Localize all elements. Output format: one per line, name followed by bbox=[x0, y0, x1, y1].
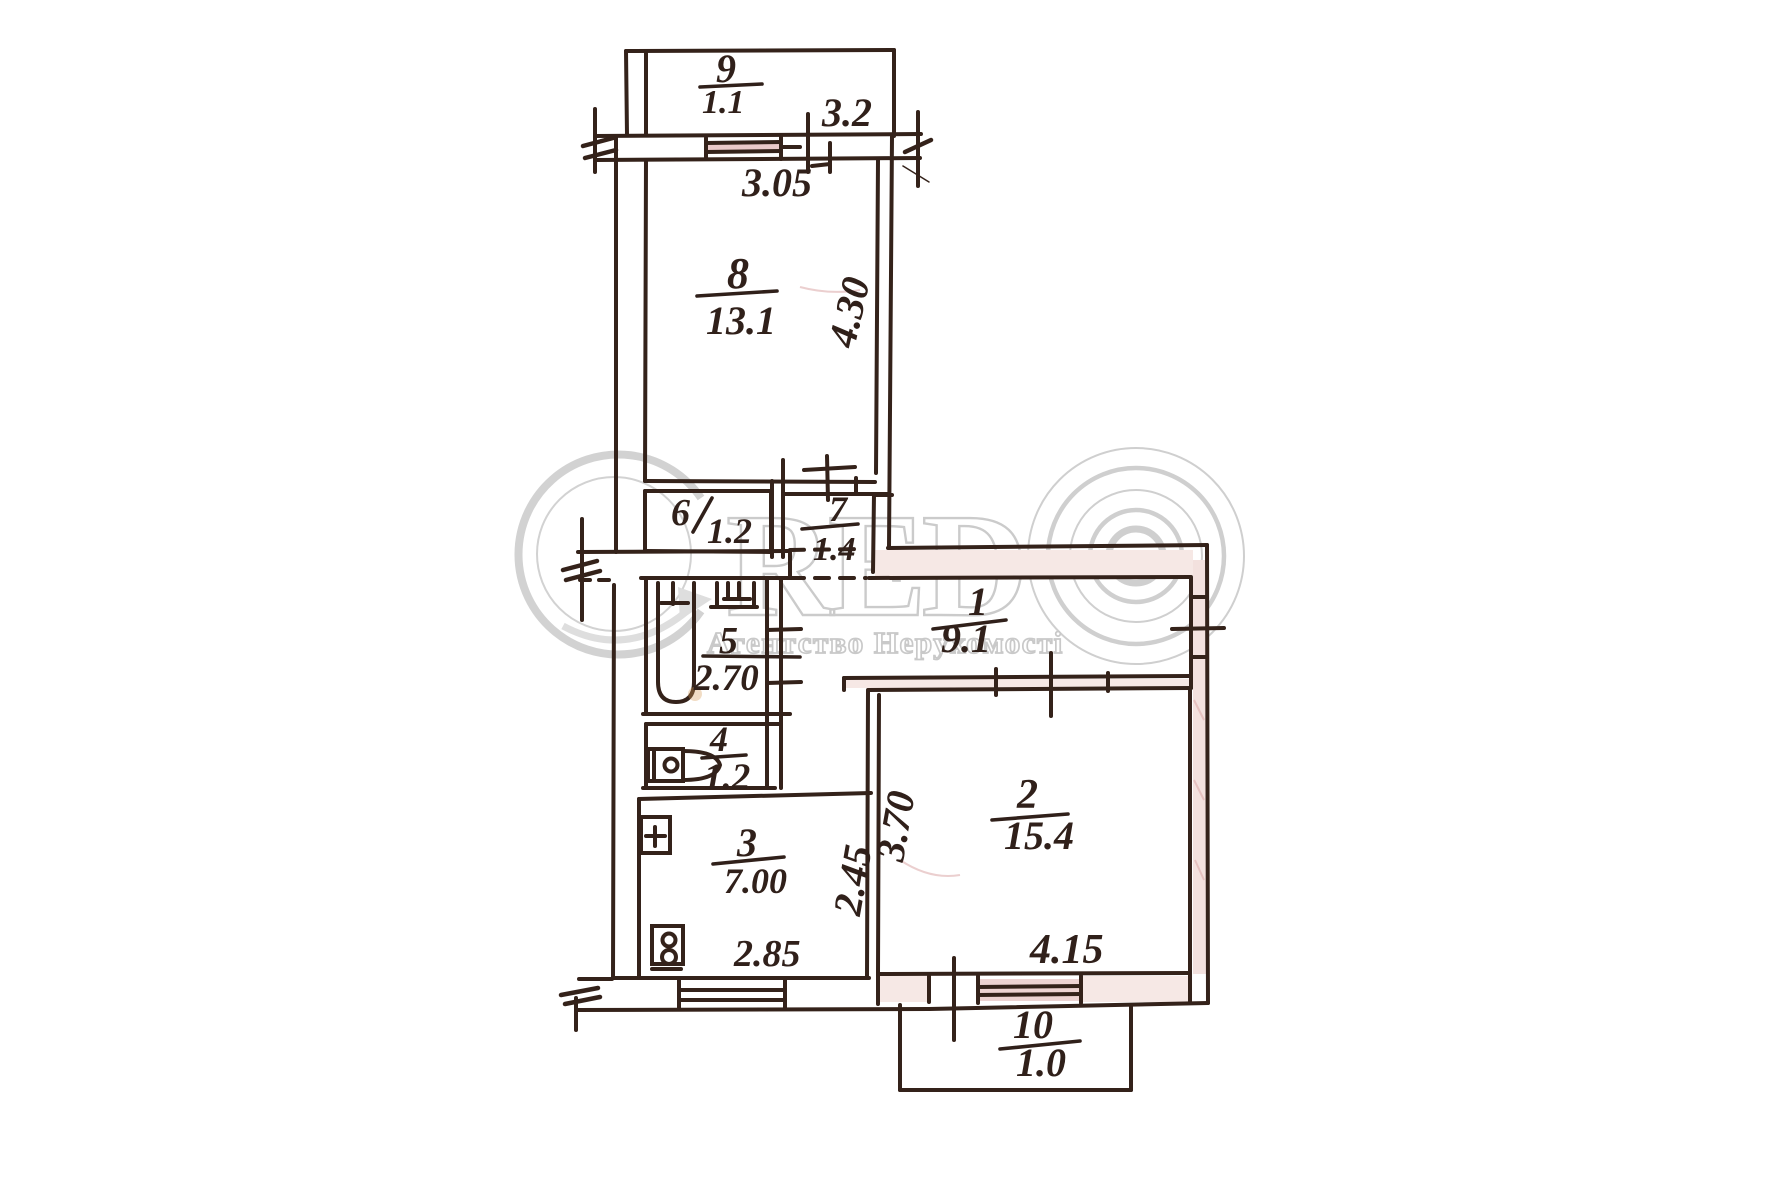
svg-text:4.15: 4.15 bbox=[1029, 927, 1104, 973]
svg-text:2.70: 2.70 bbox=[693, 658, 759, 699]
svg-text:1.4: 1.4 bbox=[813, 531, 856, 568]
svg-text:8: 8 bbox=[727, 249, 749, 298]
svg-text:2.85: 2.85 bbox=[733, 933, 801, 975]
svg-text:13.1: 13.1 bbox=[706, 298, 776, 343]
svg-text:1.2: 1.2 bbox=[704, 757, 750, 798]
svg-text:4: 4 bbox=[709, 719, 728, 759]
svg-text:Агентство Нерухомості: Агентство Нерухомості bbox=[707, 625, 1064, 660]
svg-text:3.2: 3.2 bbox=[821, 90, 872, 135]
svg-text:1.2: 1.2 bbox=[707, 511, 752, 551]
svg-text:7.00: 7.00 bbox=[724, 861, 787, 901]
svg-text:1.1: 1.1 bbox=[702, 84, 745, 121]
svg-text:3.05: 3.05 bbox=[741, 160, 812, 205]
svg-text:2: 2 bbox=[1016, 772, 1038, 818]
svg-text:6: 6 bbox=[671, 492, 690, 534]
svg-text:7: 7 bbox=[829, 489, 849, 529]
